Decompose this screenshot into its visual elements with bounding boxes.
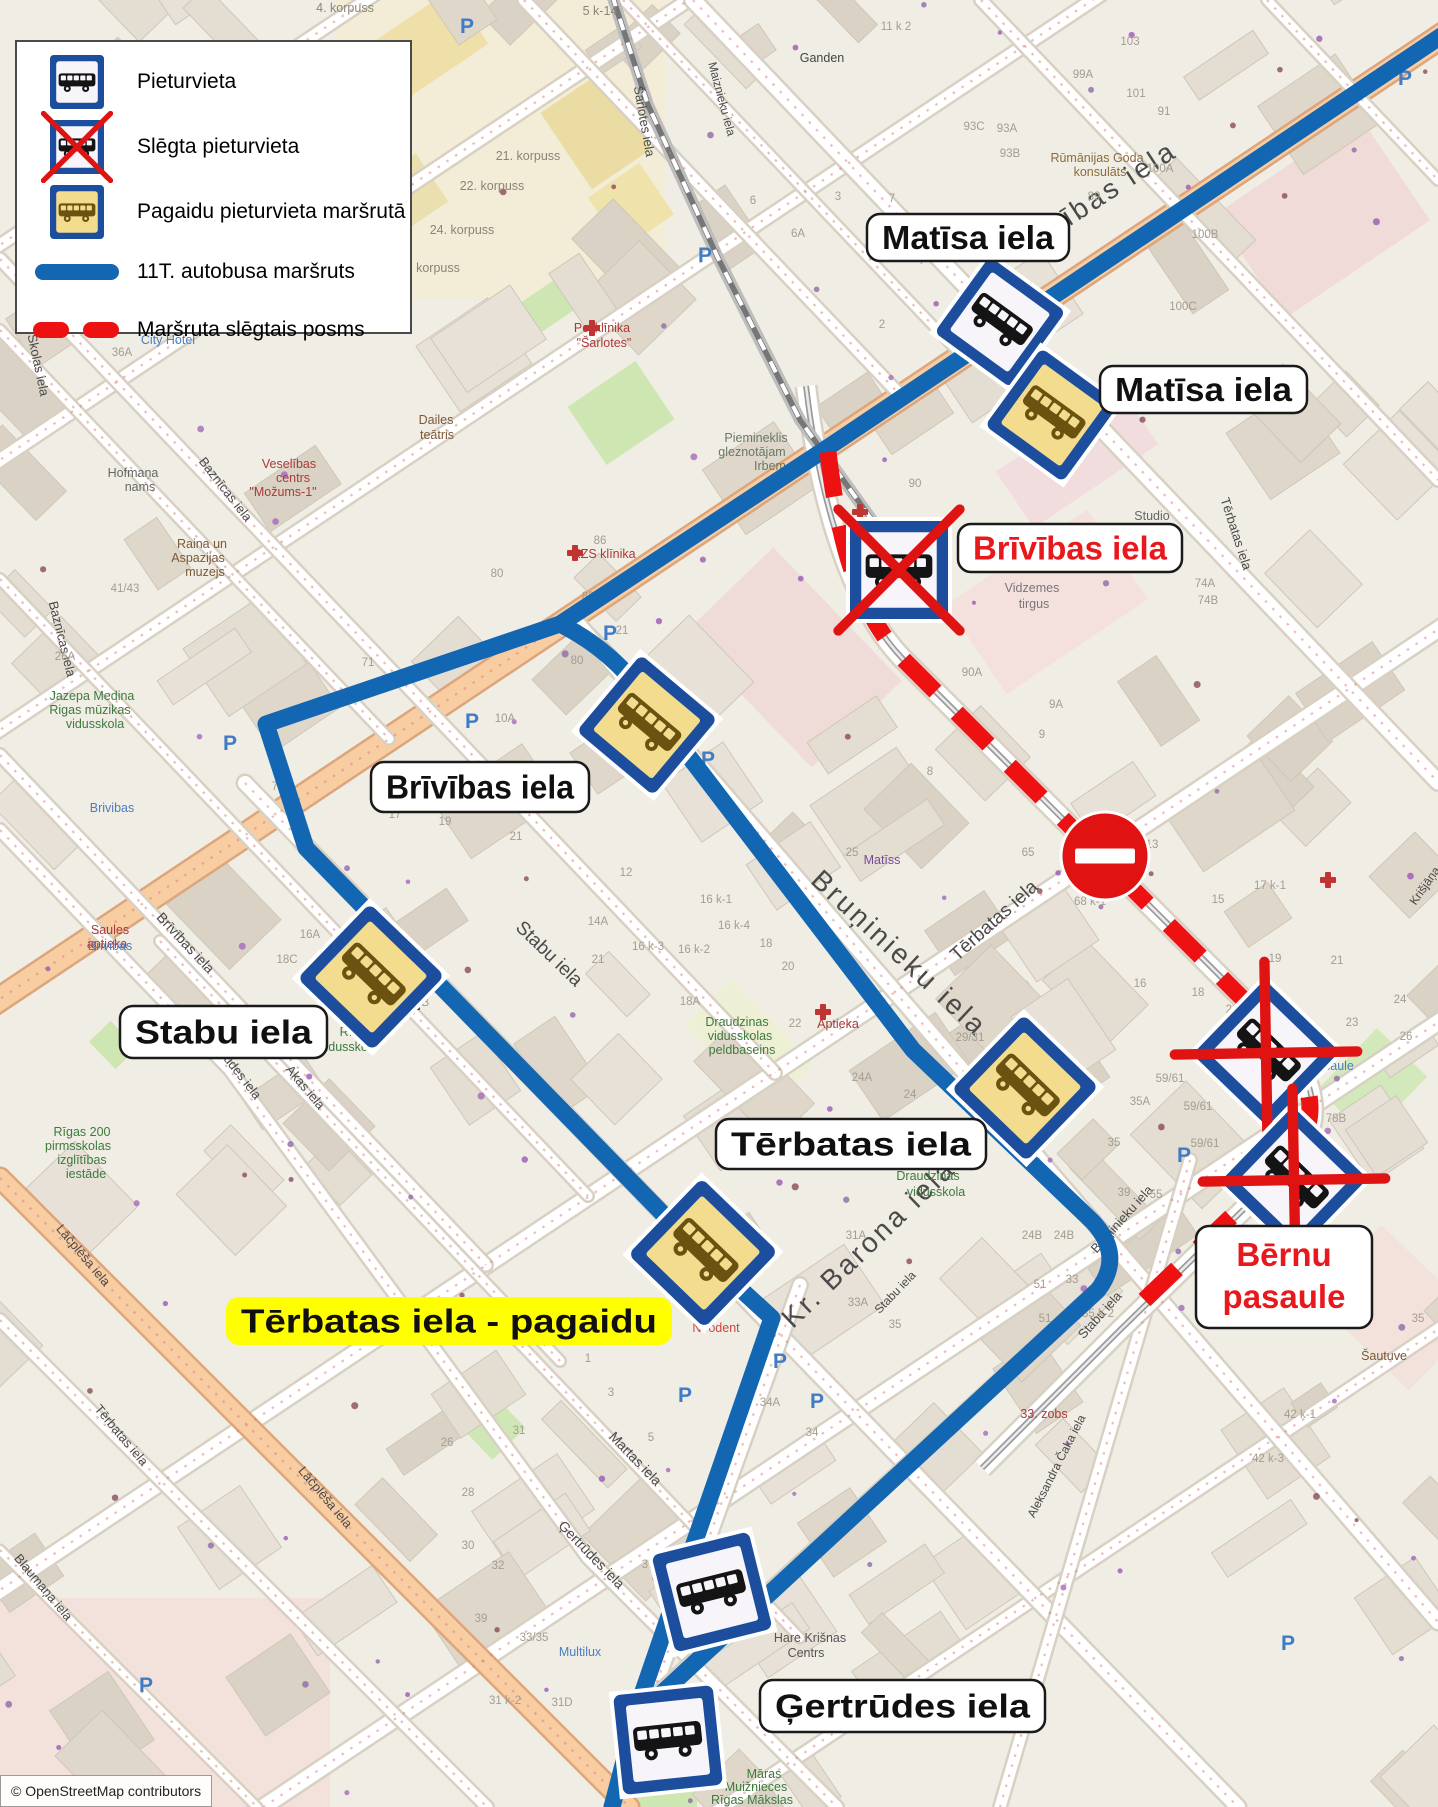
house-number: 100C — [1169, 301, 1197, 313]
house-number: 86 — [594, 535, 607, 547]
map-dot — [888, 375, 893, 380]
map-dot — [351, 1402, 358, 1409]
place-label: Vidzemes — [1005, 581, 1060, 595]
map-dot — [1352, 147, 1357, 152]
map-dot — [707, 132, 714, 139]
map-dot — [776, 1179, 782, 1185]
house-number: 32 — [492, 1560, 505, 1572]
place-label: Brivibas — [88, 939, 132, 953]
map-dot — [5, 1701, 12, 1708]
house-number: 41/43 — [111, 583, 140, 595]
map-dot — [46, 966, 51, 971]
map-dot — [1194, 681, 1201, 688]
parking-icon: P — [1281, 1632, 1295, 1655]
house-number: 9A — [1049, 699, 1063, 711]
house-number: 6 — [750, 195, 756, 207]
map-dot — [1399, 1656, 1404, 1661]
house-number: 11 k 2 — [881, 21, 911, 33]
house-number: 7 — [889, 193, 895, 205]
house-number: 9 — [1039, 729, 1045, 741]
parking-icon: P — [223, 732, 237, 755]
parking-icon: P — [603, 622, 617, 645]
map-dot — [112, 1494, 118, 1500]
house-number: 16 k-1 — [700, 894, 732, 906]
map-dot — [656, 618, 662, 624]
map-dot — [1186, 185, 1191, 190]
map-dot — [1277, 67, 1283, 73]
house-number: 103 — [1120, 36, 1139, 48]
map-dot — [867, 1562, 872, 1567]
house-number: 1 — [585, 1353, 591, 1365]
house-number: 18 — [760, 938, 773, 950]
svg-text:Stabu iela: Stabu iela — [135, 1014, 313, 1051]
map-dot — [287, 1141, 293, 1147]
svg-text:Brīvības iela: Brīvības iela — [973, 530, 1168, 567]
house-number: 55 — [1150, 1189, 1163, 1201]
place-label: Dailes — [419, 413, 454, 427]
svg-text:Bērnu: Bērnu — [1236, 1236, 1331, 1273]
svg-text:Tērbatas iela: Tērbatas iela — [731, 1126, 972, 1163]
parking-icon: P — [698, 244, 712, 267]
svg-text:Ģertrūdes iela: Ģertrūdes iela — [775, 1688, 1031, 1725]
map-dot — [522, 1156, 528, 1162]
route-line-swatch — [17, 260, 137, 284]
place-label: 33. zobs — [1020, 1407, 1067, 1421]
place-label: iestāde — [66, 1167, 106, 1181]
parking-icon: P — [460, 15, 474, 38]
map-attribution: © OpenStreetMap contributors — [0, 1775, 212, 1807]
stop-label: Matīsa iela — [867, 214, 1069, 261]
house-number: 93B — [1000, 148, 1021, 160]
place-label: 24. korpuss — [430, 223, 495, 237]
house-number: 14A — [588, 916, 609, 928]
map-dot — [87, 1388, 93, 1394]
map-dot — [1282, 193, 1288, 199]
map-dot — [1055, 870, 1061, 876]
no-entry-icon — [1061, 812, 1149, 900]
place-label: vidusskola — [66, 717, 124, 731]
map-dot — [344, 865, 350, 871]
place-label: pirmsskolas — [45, 1139, 111, 1153]
house-number: 5 — [648, 1432, 654, 1444]
house-number: 31 — [513, 1425, 526, 1437]
house-number: 59/61 — [1184, 1101, 1213, 1113]
house-number: 22 — [789, 1018, 802, 1030]
map-dot — [1149, 871, 1154, 876]
stop-label: Tērbatas iela — [716, 1119, 986, 1169]
place-label: Hare Krišnas — [774, 1631, 846, 1645]
house-number: 93A — [997, 123, 1018, 135]
house-number: 80 — [571, 655, 584, 667]
map-dot — [40, 566, 46, 572]
stop-label: Bērnupasaule — [1196, 1226, 1372, 1328]
house-number: 21 — [510, 831, 523, 843]
map-dot — [302, 1681, 309, 1688]
place-label: Draudzinas — [705, 1015, 768, 1029]
svg-text:Brīvības iela: Brīvības iela — [386, 769, 575, 806]
place-label: Piemineklis — [724, 431, 787, 445]
place-label: Studio — [1134, 509, 1169, 523]
map-dot — [1215, 789, 1220, 794]
map-dot — [972, 601, 976, 605]
legend-item-label: 11T. autobusa maršruts — [137, 260, 355, 284]
stop-label: Brīvības iela — [958, 524, 1182, 572]
house-number: 31D — [551, 1697, 572, 1709]
svg-text:Matīsa iela: Matīsa iela — [882, 219, 1055, 256]
parking-icon: P — [810, 1390, 824, 1413]
house-number: 90 — [909, 478, 922, 490]
map-dot — [134, 1200, 140, 1206]
house-number: 71 — [362, 657, 375, 669]
house-number: 100B — [1192, 229, 1219, 241]
house-number: 99A — [1073, 69, 1094, 81]
house-number: 21 — [616, 625, 629, 637]
parking-icon: P — [139, 1674, 153, 1697]
map-dot — [289, 1177, 294, 1182]
map-dot — [272, 518, 279, 525]
house-number: 19 — [1269, 953, 1282, 965]
temporary-stop-icon — [46, 181, 108, 243]
house-number: 12 — [620, 867, 633, 879]
map-dot — [284, 1536, 288, 1540]
parking-icon: P — [773, 1350, 787, 1373]
temporary-stop-icon — [17, 176, 137, 248]
map-dot — [690, 453, 697, 460]
map-dot — [792, 1183, 799, 1190]
map-dot — [882, 457, 887, 462]
parking-icon: P — [465, 710, 479, 733]
house-number: 29/31 — [956, 1032, 985, 1044]
map-dot — [344, 1790, 349, 1795]
house-number: 80 — [491, 568, 504, 580]
legend-item-temporary-stop: Pagaidu pieturvieta maršrutā — [17, 180, 410, 244]
house-number: 21 — [592, 954, 605, 966]
map-dot — [1088, 87, 1094, 93]
place-label: peldbaseins — [709, 1043, 776, 1057]
map-dot — [983, 1431, 988, 1436]
legend-item-label: Pagaidu pieturvieta maršrutā — [137, 200, 405, 224]
map-dot — [405, 1692, 410, 1697]
map-dot — [792, 1492, 796, 1496]
bus-stop-icon — [17, 46, 137, 118]
house-number: 21 — [1331, 955, 1344, 967]
place-label: centrs — [276, 471, 310, 485]
stop-label: Tērbatas iela - pagaidu — [226, 1297, 672, 1345]
legend-item-label: Slēgta pieturvieta — [137, 135, 299, 159]
place-label: gleznotājam — [718, 445, 785, 459]
house-number: 39 — [475, 1613, 488, 1625]
map-dot — [239, 943, 246, 950]
map-dot — [845, 734, 851, 740]
place-label: tirgus — [1019, 597, 1050, 611]
map-dot — [1316, 36, 1322, 42]
place-label: Rūmānijas Goda — [1050, 151, 1143, 165]
map-dot — [798, 576, 804, 582]
place-label: 22. korpuss — [460, 179, 525, 193]
svg-text:pasaule: pasaule — [1223, 1278, 1346, 1315]
place-label: Saules — [91, 923, 129, 937]
map-dot — [197, 426, 204, 433]
map-dot — [544, 1688, 548, 1692]
house-number: 18 — [1192, 987, 1205, 999]
map-dot — [933, 301, 939, 307]
map-dot — [666, 1468, 671, 1473]
house-number: 15 — [1212, 894, 1225, 906]
closed-stop-icon — [44, 114, 111, 181]
house-number: 6A — [791, 228, 805, 240]
map-dot — [700, 557, 706, 563]
map-dot — [570, 1012, 576, 1018]
house-number: 35A — [1130, 1096, 1151, 1108]
map-dot — [1334, 1076, 1340, 1082]
map-dot — [599, 1476, 605, 1482]
house-number: 17 k-1 — [1254, 880, 1286, 892]
bus-stop-icon — [46, 51, 108, 113]
place-label: Draudzinas — [896, 1169, 959, 1183]
stop-label: Brīvības iela — [371, 762, 589, 812]
map-dot — [1048, 1157, 1053, 1162]
house-number: 23 — [1346, 1017, 1359, 1029]
legend-item-label: Pieturvieta — [137, 70, 236, 94]
house-number: 51 — [1034, 1279, 1047, 1291]
bus-stop-icon — [609, 1681, 728, 1800]
map-dot — [814, 287, 820, 293]
house-number: 33 — [1066, 1274, 1079, 1286]
place-label: 4. korpuss — [316, 1, 374, 15]
house-number: 26 — [441, 1437, 454, 1449]
house-number: 42 k-3 — [1252, 1453, 1284, 1465]
legend-item-stop: Pieturvieta — [17, 50, 410, 114]
closed-stop-icon — [17, 111, 137, 183]
house-number: 39 — [1118, 1187, 1131, 1199]
stop-label: Matīsa iela — [1100, 366, 1307, 413]
house-number: 101 — [1126, 88, 1145, 100]
house-number: 34A — [760, 1397, 781, 1409]
place-label: 5 k-14 — [583, 4, 618, 18]
map-dot — [688, 1798, 693, 1803]
house-number: 18C — [276, 954, 297, 966]
map-dot — [1117, 1568, 1122, 1573]
house-number: 31A — [846, 1230, 867, 1242]
place-label: "Možums-1" — [249, 485, 316, 499]
place-label: Matīss — [864, 853, 901, 867]
map-dot — [406, 879, 411, 884]
house-number: 24A — [852, 1072, 873, 1084]
map-dot — [1230, 122, 1236, 128]
place-label: "Šarlotes" — [577, 335, 632, 350]
map-dot — [906, 1258, 912, 1264]
house-number: 51 — [1039, 1313, 1052, 1325]
place-label: Ganden — [800, 51, 845, 65]
place-label: Hofmaņa — [108, 466, 159, 480]
place-label: vidusskola — [907, 1185, 965, 1199]
map-dot — [1423, 69, 1428, 74]
place-label: nams — [125, 480, 156, 494]
svg-text:Matīsa iela: Matīsa iela — [1115, 371, 1293, 408]
house-number: 2 — [879, 319, 885, 331]
map-dot — [1313, 1493, 1320, 1500]
place-label: Jazepa Medina — [50, 689, 135, 703]
house-number: 31 k-2 — [489, 1695, 521, 1707]
house-number: 10A — [495, 713, 516, 725]
house-number: 3 — [608, 1387, 614, 1399]
house-number: 90A — [962, 667, 983, 679]
place-label: Rigas mūzikas — [49, 703, 130, 717]
place-label: Rīgas 200 — [54, 1125, 111, 1139]
map-dot — [478, 1092, 485, 1099]
map-dot — [793, 45, 799, 51]
map-dot — [843, 1197, 849, 1203]
map-dot — [1332, 1399, 1337, 1404]
house-number: 59/61 — [1191, 1138, 1220, 1150]
legend-item-closed-segment: Maršruta slēgtais posms — [17, 298, 410, 362]
map-dot — [1178, 1305, 1184, 1311]
house-number: 74B — [1198, 595, 1219, 607]
stop-label: Stabu iela — [120, 1006, 327, 1058]
house-number: 24B — [1054, 1230, 1075, 1242]
map-dot — [1411, 1556, 1416, 1561]
place-label: Raina un — [177, 537, 227, 551]
house-number: 93C — [963, 121, 984, 133]
house-number: 8 — [927, 766, 933, 778]
house-number: 33A — [848, 1297, 869, 1309]
legend-item-closed-stop: Slēgta pieturvieta — [17, 115, 410, 179]
place-label: 21. korpuss — [496, 149, 561, 163]
house-number: 78B — [1326, 1113, 1347, 1125]
legend-panel: Pieturvieta Slēgta pieturvieta Pagaidu p… — [15, 40, 412, 334]
house-number: 16 k-3 — [632, 941, 664, 953]
place-label: Aspazijas — [171, 551, 225, 565]
map-dot — [1407, 873, 1414, 880]
house-number: 16A — [300, 929, 321, 941]
map-dot — [1158, 1124, 1165, 1131]
house-number: 42 k-1 — [1284, 1409, 1316, 1421]
map-dot — [376, 1659, 380, 1663]
house-number: 3 — [835, 191, 841, 203]
place-label: Veselības — [262, 457, 316, 471]
house-number: 65 — [1022, 847, 1035, 859]
map-dot — [661, 323, 666, 328]
map-dot — [942, 895, 947, 900]
place-label: teātris — [420, 428, 454, 442]
map-dot — [1398, 1324, 1405, 1331]
house-number: 26 — [1400, 1031, 1413, 1043]
map-dot — [56, 1745, 61, 1750]
parking-icon: P — [678, 1384, 692, 1407]
map-dot — [197, 734, 203, 740]
stop-label: Ģertrūdes iela — [760, 1680, 1045, 1732]
map-dot — [1373, 218, 1380, 225]
place-label: Centrs — [788, 1646, 825, 1660]
place-label: konsulāts — [1074, 165, 1127, 179]
house-number: 28 — [462, 1487, 475, 1499]
house-number: 16 — [1134, 978, 1147, 990]
closed-stop-icon — [838, 509, 960, 631]
map-dot — [611, 184, 616, 189]
place-label: Poliklīnika — [574, 321, 630, 335]
map-dot — [524, 876, 529, 881]
house-number: 16 k-4 — [718, 920, 751, 932]
map-dot — [998, 30, 1002, 34]
map-dot — [494, 1627, 499, 1632]
parking-icon: P — [1177, 1144, 1191, 1167]
house-number: 24 — [1394, 994, 1407, 1006]
map-dot — [163, 1301, 168, 1306]
map-dot — [827, 1106, 833, 1112]
house-number: 34 — [806, 1427, 819, 1439]
house-number: 35 — [1108, 1137, 1121, 1149]
map-dot — [1139, 417, 1145, 423]
map-canvas: Brīvības ielaBruņinieku ielaKr. Barona i… — [0, 0, 1438, 1807]
house-number: 74A — [1195, 578, 1216, 590]
house-number: 26A — [55, 651, 76, 663]
place-label: Muižnieces — [725, 1780, 788, 1794]
map-dot — [208, 1542, 214, 1548]
map-dot — [408, 1195, 413, 1200]
map-dot — [242, 1173, 247, 1178]
place-label: Māras — [747, 1767, 782, 1781]
house-number: 35 — [1412, 1313, 1425, 1325]
map-dot — [1060, 1585, 1066, 1591]
house-number: 35 — [889, 1319, 902, 1331]
house-number: 91 — [1158, 106, 1171, 118]
place-label: muzejs — [185, 565, 225, 579]
map-dot — [1175, 1249, 1181, 1255]
house-number: 24B — [1022, 1230, 1043, 1242]
map-dot — [465, 967, 472, 974]
house-number: 30 — [462, 1540, 475, 1552]
house-number: 89 — [1088, 191, 1101, 203]
place-label: Multilux — [559, 1645, 602, 1659]
place-label: Brivibas — [90, 801, 134, 815]
legend-item-route: 11T. autobusa maršruts — [17, 240, 410, 304]
place-label: izglītības — [57, 1153, 106, 1167]
legend-item-label: Maršruta slēgtais posms — [137, 318, 365, 342]
map-dot — [921, 2, 926, 7]
place-label: korpuss — [416, 261, 460, 275]
place-label: Rīgas Mākslas — [711, 1793, 793, 1807]
place-label: vidusskolas — [708, 1029, 773, 1043]
house-number: 33/35 — [520, 1632, 549, 1644]
map-dot — [1103, 580, 1109, 586]
house-number: 18A — [680, 996, 701, 1008]
house-number: 25 — [846, 847, 859, 859]
house-number: 16 k-2 — [678, 944, 710, 956]
place-label: Šautuve — [1361, 1348, 1407, 1363]
svg-text:Tērbatas iela - pagaidu: Tērbatas iela - pagaidu — [241, 1303, 657, 1340]
closed-segment-swatch — [17, 318, 137, 342]
map-dot — [562, 650, 569, 657]
house-number: 59/61 — [1156, 1073, 1185, 1085]
house-number: 19 — [439, 816, 452, 828]
house-number: 100A — [1147, 163, 1174, 175]
house-number: 24 — [904, 1089, 917, 1101]
house-number: 20 — [782, 961, 795, 973]
map-dot — [1355, 1518, 1359, 1522]
